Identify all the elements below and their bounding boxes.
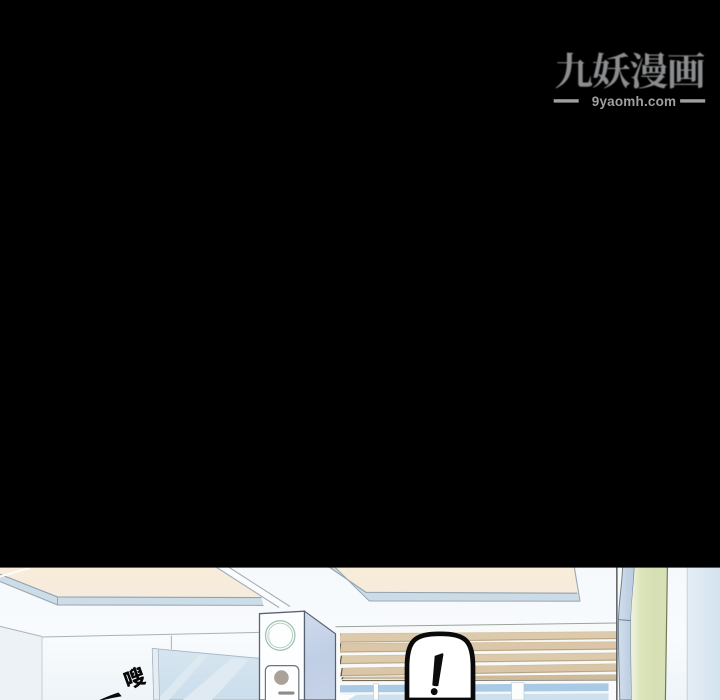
svg-text:9yaomh.com: 9yaomh.com (592, 94, 677, 109)
